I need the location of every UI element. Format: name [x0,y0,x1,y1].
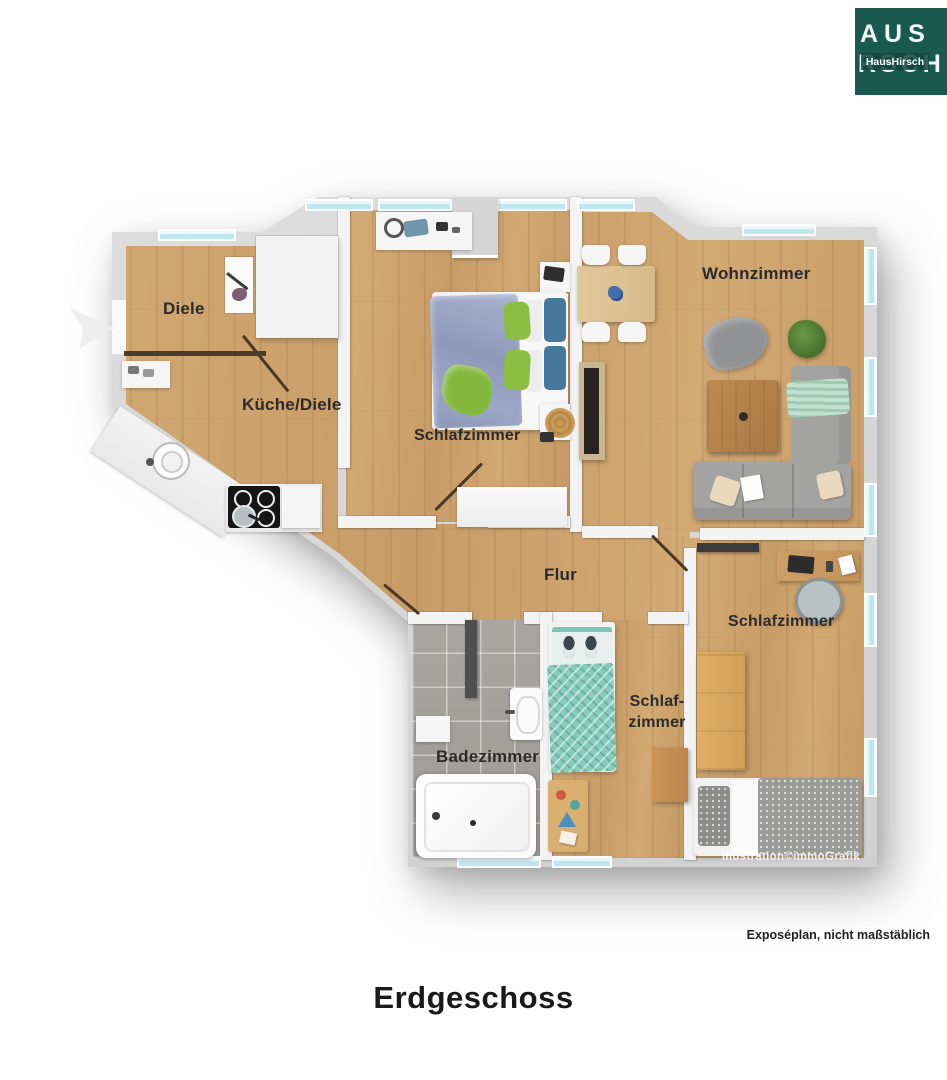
kitchen-faucet [146,458,154,466]
penguin-2 [585,636,597,658]
label-diele: Diele [163,298,205,320]
bed-sheet-right [732,780,760,854]
laptop [543,266,565,283]
sink-basin [516,696,540,734]
logo-badge: HausHirsch [861,53,929,70]
tv [584,368,599,454]
penguin-1 [563,636,575,658]
plant [788,320,826,358]
window-top-5 [577,199,635,211]
sofa-seam-2 [792,464,794,518]
label-schlafzimmer-klein-line2: zimmer [628,714,685,731]
bathtub-inner [424,782,530,852]
chair-2 [618,245,646,265]
burner-2 [257,490,275,508]
window-right-5 [864,738,877,797]
label-schlafzimmer-klein-line1: Schlaf- [630,693,685,710]
pillow-blue-2 [544,346,566,390]
window-bottom-2 [552,856,612,868]
built-in-closet [256,236,338,338]
teal-duvet [547,663,617,773]
vase [608,286,621,299]
watermark: Illustration©immoGrafik [640,851,860,863]
window-living-top [742,224,816,236]
window-right-1 [864,247,877,305]
wall-bedroom-left [338,197,350,468]
desk-laptop [787,555,814,574]
pillow-blue-1 [544,298,566,342]
folded-clothes [403,218,429,237]
label-flur: Flur [544,564,577,586]
window-diele [158,229,236,241]
wall-bedroom-bottom-left [338,516,436,528]
window-top-3 [378,199,452,211]
label-schlafzimmer-klein: Schlaf- zimmer [616,692,698,734]
tub-drain [470,820,476,826]
window-right-3 [864,483,877,537]
wall-flur-bottom-3 [648,612,688,624]
bag [540,432,554,442]
mirror [384,218,404,238]
page-title: Erdgeschoss [0,980,947,1016]
table-knob [739,412,748,421]
label-schlafzimmer-rechts: Schlafzimmer [728,612,834,633]
bed-duvet-right [758,778,862,856]
pillow-green-1 [503,301,532,341]
bath-shelf [416,716,450,742]
floorplan-page: Diele Küche/Diele Schlafzimmer Wohnzimme… [0,0,947,1080]
sink-faucet [505,710,515,714]
shoes-2 [143,369,154,377]
kitchen-sink-inner [161,451,183,473]
entry-gap [112,300,126,354]
dresser-item-2 [452,227,460,233]
wall-living-bottom [582,526,658,538]
magazine [740,474,764,501]
bath-partition [465,620,477,698]
window-top-4 [497,199,567,211]
disclaimer: Exposéplan, nicht maßstäblich [747,928,930,942]
mint-throw [786,378,850,418]
window-right-4 [864,593,877,647]
toy-ball-teal [570,800,580,810]
toy-triangle [558,812,576,827]
desk-phone [826,561,833,572]
wall-rightbedroom-top [700,528,864,540]
bed-pillow-right [698,786,730,846]
label-badezimmer: Badezimmer [436,746,539,768]
wardrobe [697,652,745,770]
tub-faucet [432,812,440,820]
wall-shelf [697,543,759,552]
shoes [128,366,139,374]
hall-sideboard [457,487,567,527]
sofa-pillow-2 [816,470,845,500]
chair-3 [582,322,610,342]
wood-shelf-small [652,748,688,802]
logo-badge-text: HausHirsch [866,56,924,68]
label-kueche: Küche/Diele [242,394,342,416]
pillow-green-2 [503,349,531,390]
window-top-2 [305,199,373,211]
chair-4 [618,322,646,342]
kitchen-cabinet [282,486,320,528]
window-right-2 [864,357,877,417]
label-wohnzimmer: Wohnzimmer [702,263,810,285]
label-schlafzimmer-top: Schlafzimmer [414,426,520,447]
chair-1 [582,245,610,265]
coat-rail [124,351,266,356]
toy-ball-red [556,790,566,800]
logo-text-line1: AUS [860,20,931,49]
brand-logo: AUS RSCH HausHirsch [855,8,947,95]
dresser-item [436,222,448,231]
